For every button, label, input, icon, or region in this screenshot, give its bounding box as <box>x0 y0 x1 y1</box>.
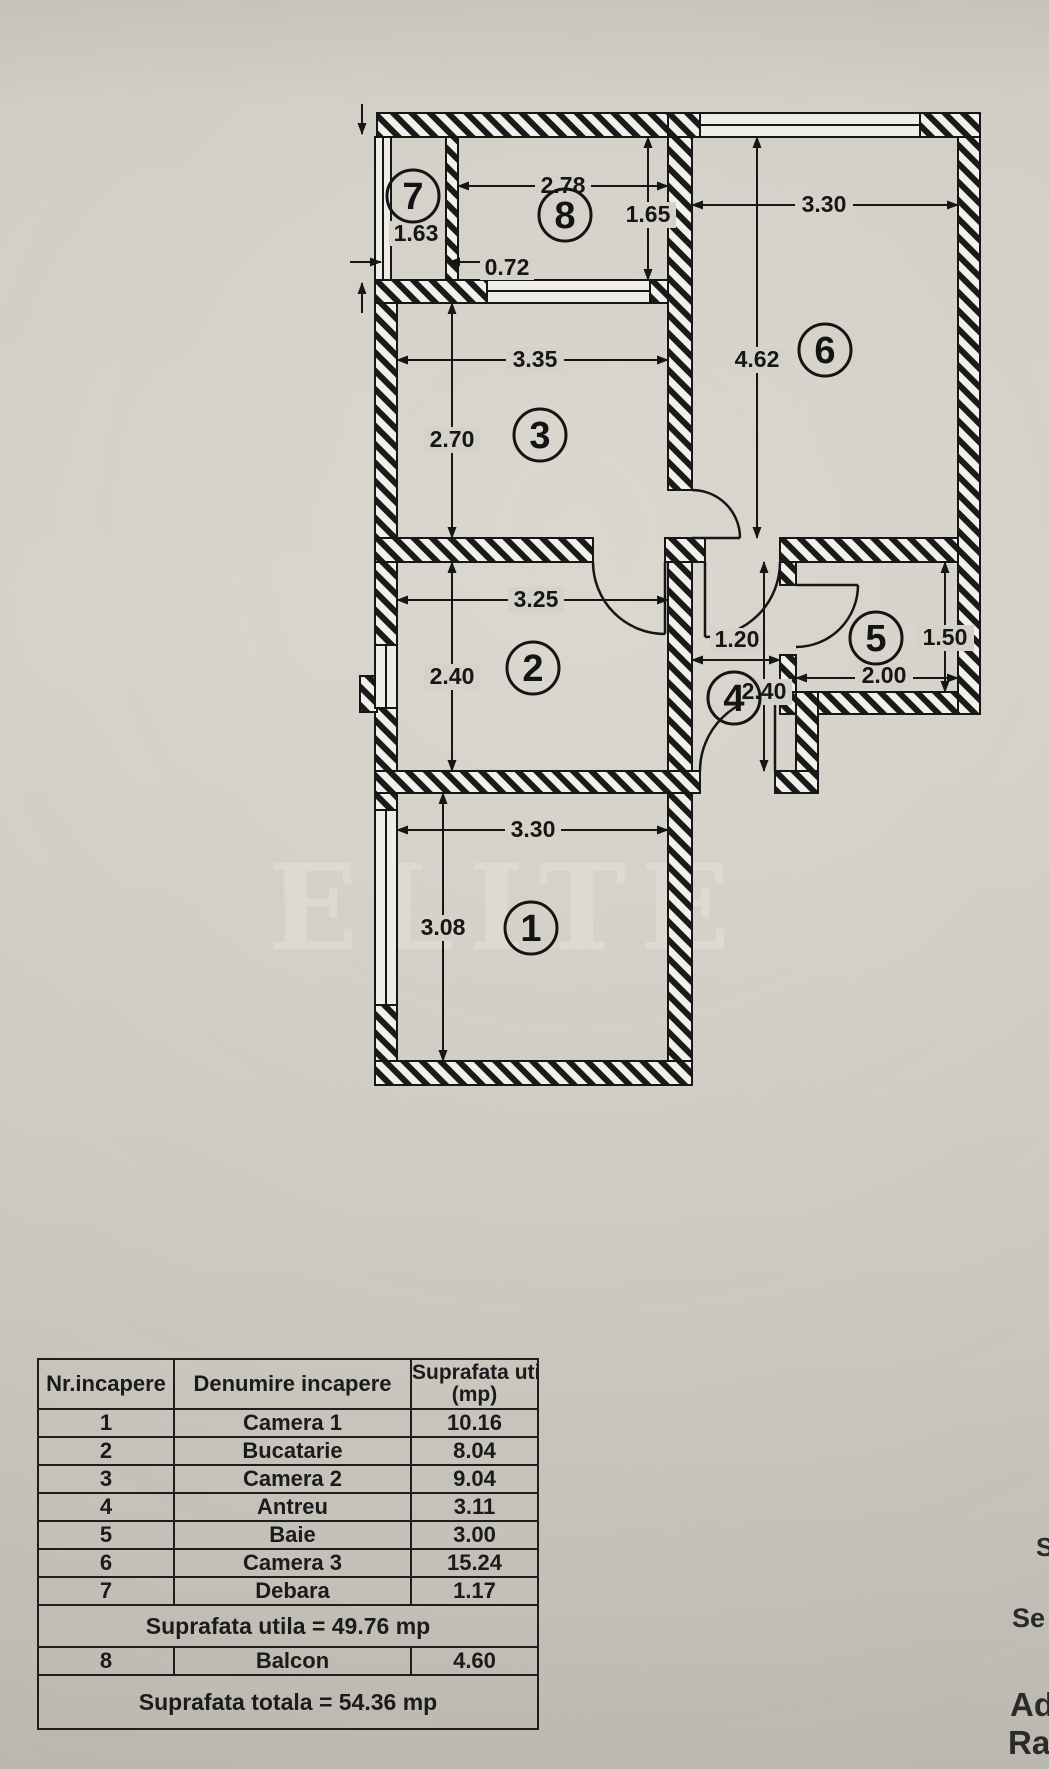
room-number-8: 8 <box>554 195 575 237</box>
edge-text-fragment: S <box>1036 1532 1049 1563</box>
wall <box>668 137 692 490</box>
wall <box>375 771 700 793</box>
wall <box>375 562 397 645</box>
cell-nr: 6 <box>38 1549 174 1577</box>
room-number-6: 6 <box>814 330 835 372</box>
header-suprafata-line1: Suprafata utila <box>412 1362 537 1384</box>
wall <box>375 793 397 810</box>
dimension-label-room4-width: 1.20 <box>715 626 760 652</box>
door-arc <box>692 490 740 538</box>
dimension-label-room7-width: 0.72 <box>485 254 530 280</box>
wall <box>668 113 700 137</box>
edge-text-fragment: Se <box>1012 1603 1045 1634</box>
edge-text-fragment: Ad <box>1010 1686 1049 1724</box>
wall <box>375 1005 397 1061</box>
cell-area: 10.16 <box>411 1409 538 1437</box>
wall <box>375 538 593 562</box>
wall <box>375 280 487 303</box>
table-row: 2 Bucatarie 8.04 <box>38 1437 538 1465</box>
wall <box>375 303 397 538</box>
room-areas-table: Nr.incapere Denumire incapere Suprafata … <box>37 1358 539 1730</box>
cell-nr: 3 <box>38 1465 174 1493</box>
cell-area: 8.04 <box>411 1437 538 1465</box>
dimension-label-room1-height: 3.08 <box>421 914 466 940</box>
table-row: 7 Debara 1.17 <box>38 1577 538 1605</box>
subtotal-row: Suprafata utila = 49.76 mp <box>38 1605 538 1647</box>
wall <box>780 562 796 585</box>
table-row: 3 Camera 2 9.04 <box>38 1465 538 1493</box>
dimensions: 2.78 1.65 1.63 0.72 3.30 4.62 3.35 2.70 <box>350 104 974 1061</box>
wall <box>650 280 668 303</box>
wall <box>920 113 980 137</box>
room-number-7: 7 <box>402 176 423 218</box>
cell-area: 9.04 <box>411 1465 538 1493</box>
wall <box>775 771 818 793</box>
cell-nr: 1 <box>38 1409 174 1437</box>
cell-name: Antreu <box>174 1493 411 1521</box>
cell-nr: 8 <box>38 1647 174 1675</box>
subtotal-text: Suprafata utila = 49.76 mp <box>38 1605 538 1647</box>
wall <box>375 1061 692 1085</box>
table-row: 4 Antreu 3.11 <box>38 1493 538 1521</box>
table-row: 1 Camera 1 10.16 <box>38 1409 538 1437</box>
dimension-label-room1-width: 3.30 <box>511 816 556 842</box>
cell-area: 3.11 <box>411 1493 538 1521</box>
door-arc <box>593 562 665 634</box>
table-header-row: Nr.incapere Denumire incapere Suprafata … <box>38 1359 538 1409</box>
dimension-label-room2-height: 2.40 <box>430 663 475 689</box>
dimension-label-room2-width: 3.25 <box>514 586 559 612</box>
cell-name: Balcon <box>174 1647 411 1675</box>
cell-nr: 4 <box>38 1493 174 1521</box>
total-row: Suprafata totala = 54.36 mp <box>38 1675 538 1729</box>
balcony-row: 8 Balcon 4.60 <box>38 1647 538 1675</box>
edge-text-fragment: Rac <box>1008 1724 1049 1762</box>
wall <box>377 113 668 137</box>
cell-area: 3.00 <box>411 1521 538 1549</box>
dimension-label-room6-height: 4.62 <box>735 346 780 372</box>
header-suprafata-line2: (mp) <box>412 1384 537 1406</box>
header-denumire-incapere: Denumire incapere <box>174 1359 411 1409</box>
wall <box>668 793 692 1085</box>
cell-name: Bucatarie <box>174 1437 411 1465</box>
room-number-1: 1 <box>520 908 541 950</box>
room-number-4: 4 <box>723 678 744 720</box>
wall <box>665 538 705 562</box>
dimension-label-room4-height: 2.40 <box>742 678 787 704</box>
room-number-2: 2 <box>522 648 543 690</box>
cell-name: Camera 1 <box>174 1409 411 1437</box>
cell-nr: 7 <box>38 1577 174 1605</box>
table-row: 5 Baie 3.00 <box>38 1521 538 1549</box>
cell-name: Camera 2 <box>174 1465 411 1493</box>
wall <box>780 538 980 562</box>
dimension-label-room3-height: 2.70 <box>430 426 475 452</box>
dimension-label-room3-width: 3.35 <box>513 346 558 372</box>
dimension-label-room8-height: 1.65 <box>626 201 671 227</box>
header-suprafata-utila: Suprafata utila(mp) <box>411 1359 538 1409</box>
floorplan-drawing: 2.78 1.65 1.63 0.72 3.30 4.62 3.35 2.70 <box>0 0 1049 1200</box>
total-text: Suprafata totala = 54.36 mp <box>38 1675 538 1729</box>
wall <box>446 137 458 280</box>
wall <box>375 708 397 771</box>
cell-area: 1.17 <box>411 1577 538 1605</box>
cell-name: Baie <box>174 1521 411 1549</box>
cell-nr: 2 <box>38 1437 174 1465</box>
cell-area: 4.60 <box>411 1647 538 1675</box>
cell-name: Camera 3 <box>174 1549 411 1577</box>
room-number-5: 5 <box>865 618 886 660</box>
cell-name: Debara <box>174 1577 411 1605</box>
header-nr-incapere: Nr.incapere <box>38 1359 174 1409</box>
scanned-floorplan-page: { "plan": { "watermark": "ELITE", "rooms… <box>0 0 1049 1769</box>
dimension-label-room7-height: 1.63 <box>394 220 439 246</box>
dimension-label-room5-width: 2.00 <box>862 662 907 688</box>
dimension-label-room5-height: 1.50 <box>923 624 968 650</box>
room-number-3: 3 <box>529 415 550 457</box>
wall <box>668 562 692 771</box>
cell-nr: 5 <box>38 1521 174 1549</box>
cell-area: 15.24 <box>411 1549 538 1577</box>
table-row: 6 Camera 3 15.24 <box>38 1549 538 1577</box>
dimension-label-room6-width: 3.30 <box>802 191 847 217</box>
